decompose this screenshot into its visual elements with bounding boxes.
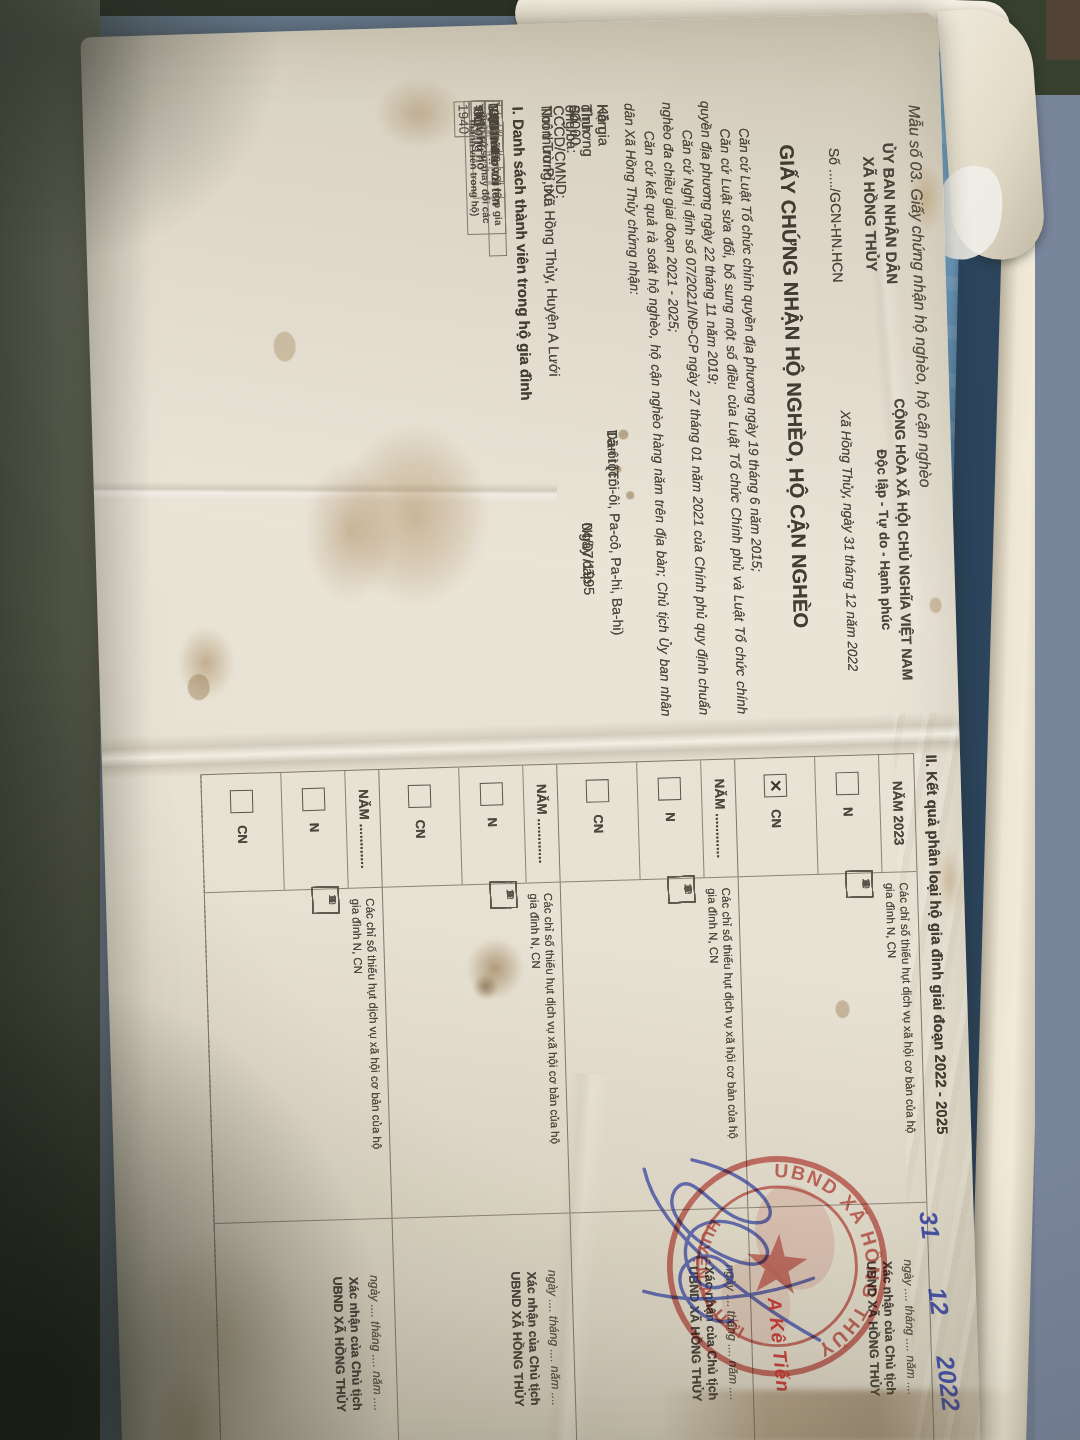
stained-paper-edge [660,1390,1020,1440]
stain-dot [273,331,296,362]
near-poor-checkbox [586,779,610,803]
near-poor-label: CN [591,814,607,833]
poor-checkbox [658,777,682,801]
photo-of-document: Mẫu số 03. Giấy chứng nhận hộ nghèo, hộ … [0,0,1080,1440]
handwritten-month: 12 [923,1286,954,1317]
near-poor-checkbox: ✕ [764,774,788,798]
signature-date-line: ngày .... tháng .... năm .... [366,1219,387,1440]
poor-checkbox [302,788,326,812]
deprivation-index-grid: 123456789101112 [517,894,526,1208]
year-label: NĂM ............ [700,759,738,877]
poor-label: N [663,812,678,822]
index-number: 12 [327,894,338,905]
certificate-number: Số ...../GCN-HN.HCN [824,81,848,349]
near-poor-checkbox [408,784,432,808]
poor-label: N [307,823,322,833]
near-poor-label: CN [413,819,429,838]
year-block: NĂM ............ N CN Các chỉ số thiếu h… [200,770,400,1440]
id-line: Số CCCD/CMND: 00000 Ngày cấp 04/07/1995 [583,105,602,735]
stain [374,76,464,151]
section1-heading: I. Danh sách thành viên trong hộ gia đìn… [510,106,536,401]
id-value: 00000 [567,105,584,146]
poor-checkbox [836,772,860,796]
issue-date-line: Ngày cấp 04/07/1995 [595,522,602,742]
legal-bases: Căn cứ Luật Tổ chức chính quyền địa phươ… [620,100,771,718]
national-header: CỘNG HÒA XÃ HỘI CHỦ NGHĨA VIỆT NAM Độc l… [836,365,916,715]
dark-corner-brown [1046,0,1080,60]
year-block: NĂM ............ N CN Các chỉ số thiếu h… [378,765,578,1440]
near-poor-checkbox [230,790,254,814]
index-number: 12 [505,889,516,900]
ethnic-value: Tà-ôi (Tôi-ôi, Pa-cô, Pa-hi, Ba-hi) [604,430,626,636]
poor-label: N [485,817,500,827]
document-title: GIẤY CHỨNG NHẬN HỘ NGHÈO, HỘ CẬN NGHÈO [773,68,815,704]
stain [301,458,397,606]
cell-female: 01-01-1940 [453,100,503,137]
near-poor-label: CN [235,825,251,844]
deprivation-index-grid: 123456789101112 [873,883,882,1197]
index-number: 12 [683,883,694,894]
year-label: NĂM ............ [344,770,382,888]
place-dateline: Xã Hồng Thủy, ngày 31 tháng 12 năm 2022 [836,367,861,715]
member-row: 1 Kăn Thương Tà-ôi Chủ Hộ 01-01-1940 [458,100,502,101]
index-number: 12 [861,878,872,889]
signature-date-line: ngày .... tháng .... năm .... [543,1214,564,1440]
ethnic-line: Dân tộc: Tà-ôi (Tôi-ôi, Pa-cô, Pa-hi, Ba… [620,430,629,740]
issuer-header: ỦY BAN NHÂN DÂN XÃ HỒNG THỦY [856,79,904,348]
near-poor-label: CN [769,809,785,828]
handwritten-day: 31 [914,1210,945,1241]
poor-label: N [841,807,856,817]
poor-checkbox [480,782,504,806]
deprivation-index-grid: 123456789101112 [339,899,348,1213]
year-label: NĂM ............ [522,765,560,883]
residence-line: Nơi thường trú: Thôn Tru Pỉ, Xã Hồng Thủ… [555,105,574,735]
certificate-paper: Mẫu số 03. Giấy chứng nhận hộ nghèo, hộ … [80,12,980,1440]
year-label: NĂM 2023 [878,754,916,872]
issue-value: 04/07/1995 [579,522,597,595]
